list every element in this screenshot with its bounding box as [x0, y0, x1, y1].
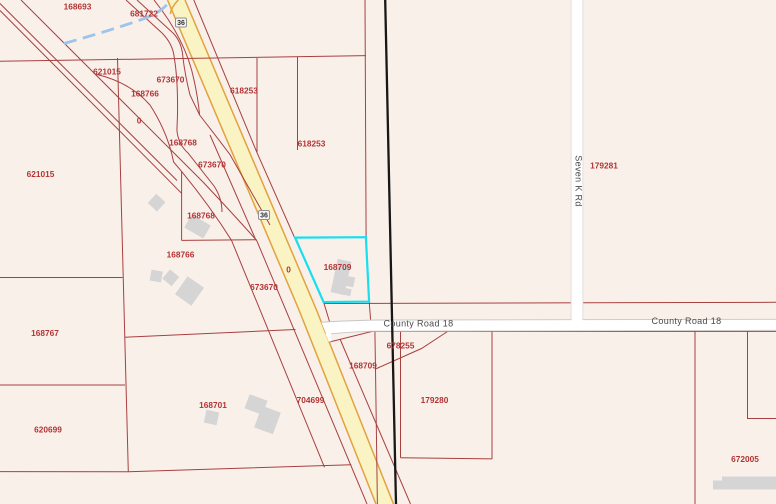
svg-text:0: 0 — [286, 265, 291, 275]
svg-text:Seven K Rd: Seven K Rd — [574, 155, 584, 207]
svg-text:168768: 168768 — [187, 211, 215, 221]
svg-text:618253: 618253 — [298, 139, 326, 149]
svg-text:36: 36 — [177, 20, 185, 27]
svg-text:673670: 673670 — [198, 160, 226, 170]
svg-text:168709: 168709 — [349, 361, 377, 371]
svg-text:620699: 620699 — [34, 425, 62, 435]
svg-text:621015: 621015 — [93, 67, 121, 77]
svg-text:168701: 168701 — [199, 400, 227, 410]
svg-text:673670: 673670 — [157, 75, 185, 85]
svg-text:168766: 168766 — [131, 89, 159, 99]
svg-text:179281: 179281 — [590, 161, 618, 171]
svg-text:179280: 179280 — [421, 395, 449, 405]
svg-text:673670: 673670 — [250, 282, 278, 292]
svg-text:County Road 18: County Road 18 — [384, 319, 454, 329]
svg-text:672005: 672005 — [731, 454, 759, 464]
svg-text:621015: 621015 — [27, 169, 55, 179]
svg-text:168693: 168693 — [64, 2, 92, 12]
svg-text:168766: 168766 — [167, 250, 195, 260]
svg-text:704699: 704699 — [297, 395, 325, 405]
svg-text:168709: 168709 — [324, 262, 352, 272]
svg-text:678255: 678255 — [387, 341, 415, 351]
svg-text:168767: 168767 — [31, 328, 59, 338]
svg-text:681722: 681722 — [130, 9, 158, 19]
svg-text:618253: 618253 — [230, 86, 258, 96]
svg-text:County Road 18: County Road 18 — [652, 316, 722, 326]
svg-text:0: 0 — [137, 116, 142, 126]
svg-text:168768: 168768 — [169, 138, 197, 148]
svg-text:36: 36 — [260, 213, 268, 220]
